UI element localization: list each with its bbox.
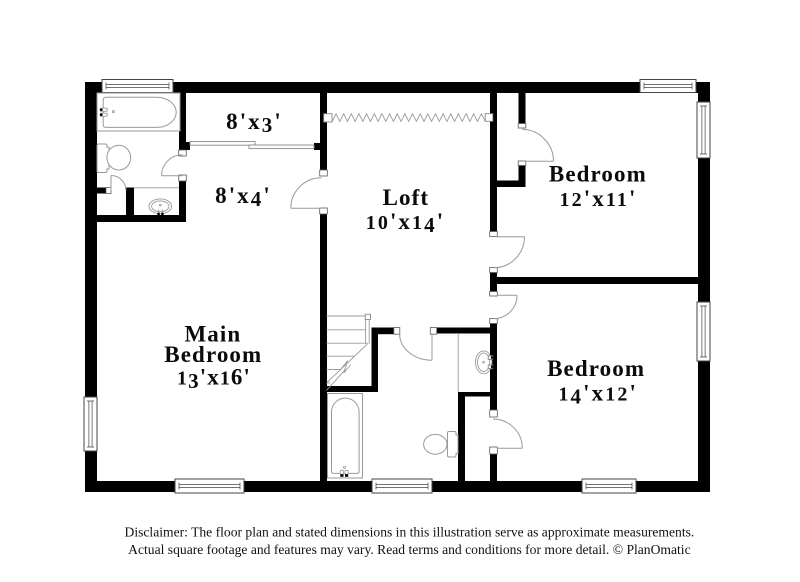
svg-text:Loft: Loft bbox=[383, 185, 430, 210]
svg-text:12'x11': 12'x11' bbox=[560, 186, 638, 211]
svg-text:14'x12': 14'x12' bbox=[558, 380, 638, 408]
svg-text:8'x4': 8'x4' bbox=[215, 183, 272, 211]
svg-text:Bedroom: Bedroom bbox=[547, 356, 645, 381]
svg-text:Disclaimer: The floor plan and: Disclaimer: The floor plan and stated di… bbox=[125, 524, 695, 539]
svg-text:13'x16': 13'x16' bbox=[177, 365, 251, 393]
svg-text:Actual square footage and feat: Actual square footage and features may v… bbox=[128, 542, 690, 557]
svg-text:8'x3': 8'x3' bbox=[226, 109, 283, 137]
svg-text:Bedroom: Bedroom bbox=[164, 342, 262, 367]
svg-text:Bedroom: Bedroom bbox=[549, 161, 647, 186]
svg-text:10'x14': 10'x14' bbox=[366, 209, 446, 237]
